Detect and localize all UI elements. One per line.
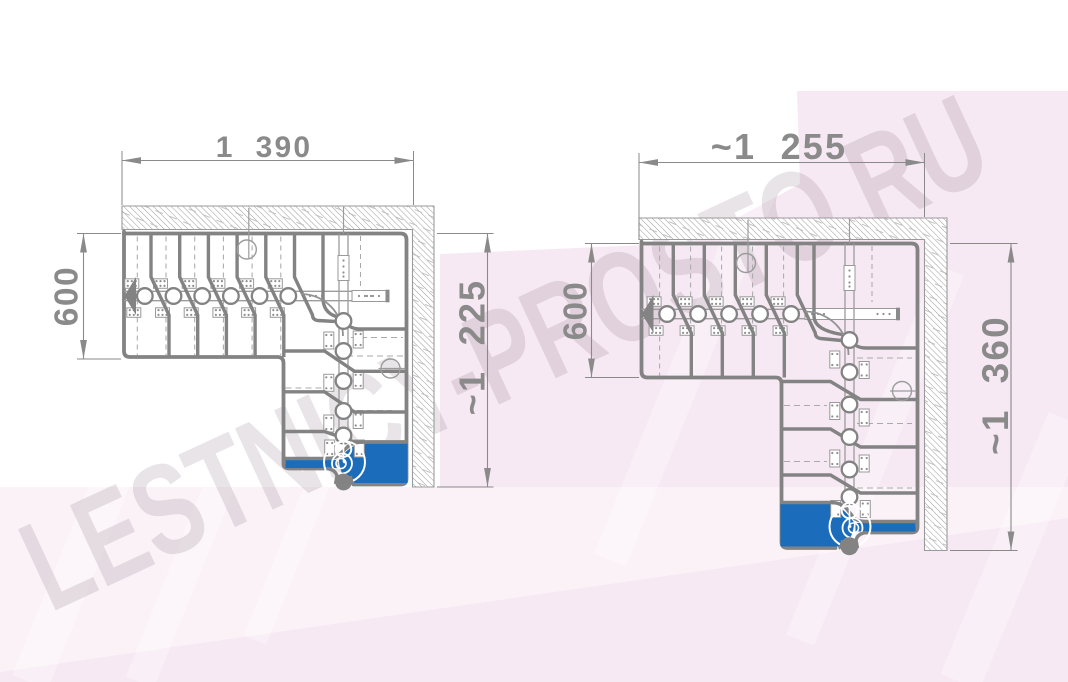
svg-text:1 390: 1 390 [216,131,313,164]
svg-text:~1 225: ~1 225 [452,279,493,416]
svg-text:~1 360: ~1 360 [975,315,1016,455]
svg-text:600: 600 [557,281,594,341]
svg-text:~1 255: ~1 255 [711,126,848,167]
svg-text:600: 600 [49,266,86,326]
